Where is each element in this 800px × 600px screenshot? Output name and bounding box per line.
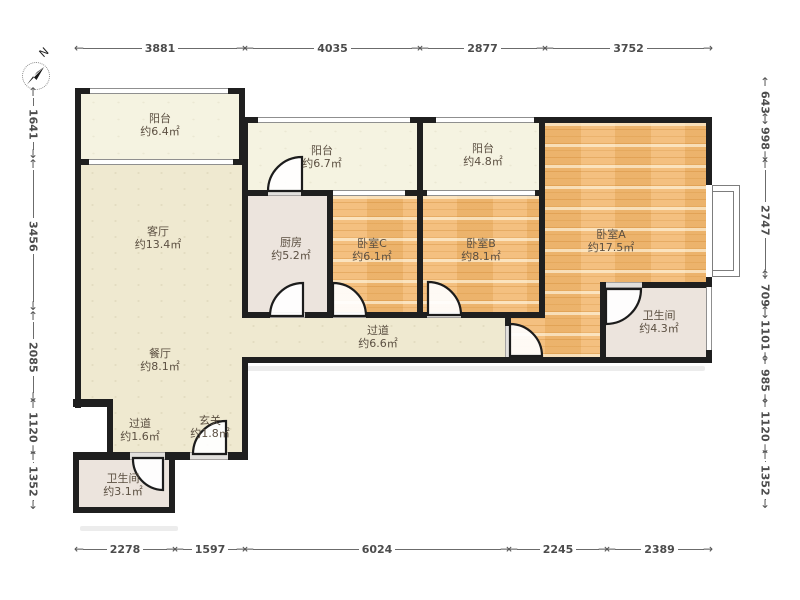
dim-line xyxy=(576,549,599,550)
dim-line xyxy=(517,549,540,550)
wall-shadow xyxy=(245,366,705,371)
exterior-notch xyxy=(73,407,107,452)
dim-label: 1352 xyxy=(759,462,772,499)
dim-line xyxy=(83,549,107,550)
wall-segment xyxy=(73,507,175,513)
dim-label: 4035 xyxy=(314,42,351,55)
dim-line xyxy=(83,48,142,49)
wall-segment xyxy=(600,282,606,363)
dim-line xyxy=(428,48,464,49)
window xyxy=(427,190,535,196)
dim-line xyxy=(33,98,34,106)
dim-label: 985 xyxy=(759,366,772,395)
dim-bottom-4: ←2245→ xyxy=(509,542,607,556)
room-label-bathroom-east: 卫生间 约4.3㎡ xyxy=(639,309,679,335)
dim-arrow-up-icon: ↑ xyxy=(760,307,770,317)
dim-line xyxy=(33,322,34,340)
dim-label: 2389 xyxy=(641,543,678,556)
dim-label: 2278 xyxy=(107,543,144,556)
room-label-bedroom-c: 卧室C 约6.1㎡ xyxy=(352,237,392,263)
window xyxy=(333,190,405,196)
room-name: 餐厅 xyxy=(140,347,180,360)
dim-line xyxy=(33,170,34,218)
room-area: 约8.1㎡ xyxy=(461,250,501,263)
dim-left-2: ↑3456↓ xyxy=(26,160,40,312)
dim-bottom-2: ←1597→ xyxy=(175,542,245,556)
dim-arrow-up-icon: ↑ xyxy=(28,160,38,170)
dim-bottom-3: ←6024→ xyxy=(245,542,509,556)
room-label-hallway: 过道 约6.6㎡ xyxy=(358,324,398,350)
wall-segment xyxy=(242,357,712,363)
compass-needle-icon xyxy=(23,63,49,89)
wall-segment xyxy=(461,312,545,318)
dim-line xyxy=(33,254,34,302)
wall-segment xyxy=(545,117,712,123)
dim-label: 2747 xyxy=(759,202,772,239)
room-name: 玄关 xyxy=(190,414,230,427)
dim-line xyxy=(183,549,192,550)
wall-segment xyxy=(242,117,258,123)
wall-segment xyxy=(242,363,248,458)
wall-segment xyxy=(228,452,248,460)
dim-left-1: ↑1641↓ xyxy=(26,88,40,160)
dim-line xyxy=(178,48,237,49)
dim-top-1: ←3881→ xyxy=(75,41,245,55)
bay-window-inner xyxy=(712,191,734,271)
dim-right-3: ↑2747↓ xyxy=(758,160,772,280)
room-label-bedroom-a: 卧室A 约17.5㎡ xyxy=(588,228,635,254)
dim-label: 1120 xyxy=(759,408,772,445)
room-label-dining: 餐厅 约8.1㎡ xyxy=(140,347,180,373)
door-sill xyxy=(427,312,461,318)
dim-label: 1641 xyxy=(27,106,40,143)
dim-bottom-5: ←2389→ xyxy=(607,542,712,556)
room-area: 约3.1㎡ xyxy=(103,485,143,498)
dim-arrow-up-icon: ↑ xyxy=(760,399,770,409)
dim-top-3: ←2877→ xyxy=(420,41,545,55)
dim-arrow-right-icon: → xyxy=(703,42,713,54)
dim-arrow-up-icon: ↑ xyxy=(28,400,38,410)
dim-label: 1101 xyxy=(759,317,772,354)
room-label-bathroom-south: 卫生间 约3.1㎡ xyxy=(103,472,143,498)
dim-line xyxy=(143,549,167,550)
wall-segment xyxy=(75,88,81,408)
dim-line xyxy=(253,549,359,550)
dim-label: 1352 xyxy=(27,463,40,500)
dim-line xyxy=(765,238,766,270)
dim-right-8: ↑1352↓ xyxy=(758,451,772,510)
room-area: 约6.7㎡ xyxy=(302,157,342,170)
room-name: 阳台 xyxy=(463,142,503,155)
dim-bottom-1: ←2278→ xyxy=(75,542,175,556)
dim-label: 1120 xyxy=(27,409,40,446)
room-label-bedroom-b: 卧室B 约8.1㎡ xyxy=(461,237,501,263)
room-name: 卧室A xyxy=(588,228,635,241)
dim-right-5: ↑1101↓ xyxy=(758,311,772,359)
room-area: 约6.6㎡ xyxy=(358,337,398,350)
wall-segment xyxy=(242,312,270,318)
room-label-living: 客厅 约13.4㎡ xyxy=(135,225,182,251)
room-name: 卫生间 xyxy=(103,472,143,485)
dim-line xyxy=(647,48,704,49)
window xyxy=(706,287,712,350)
window xyxy=(90,88,228,94)
room-label-corridor-small: 过道 约1.6㎡ xyxy=(120,417,160,443)
dim-arrow-right-icon: → xyxy=(703,543,713,555)
wall-segment xyxy=(423,117,436,123)
dim-line xyxy=(253,48,314,49)
dim-right-7: ↑1120↓ xyxy=(758,402,772,451)
dim-label: 3752 xyxy=(610,42,647,55)
wall-shadow xyxy=(80,526,178,531)
dim-line xyxy=(765,170,766,202)
wall-segment xyxy=(242,117,248,318)
window xyxy=(436,117,534,123)
dim-arrow-up-icon: ↑ xyxy=(760,78,770,88)
dim-line xyxy=(351,48,412,49)
room-label-foyer: 玄关 约1.8㎡ xyxy=(190,414,230,440)
dim-left-3: ↑2085↓ xyxy=(26,312,40,403)
room-area: 约13.4㎡ xyxy=(135,238,182,251)
room-name: 客厅 xyxy=(135,225,182,238)
dim-label: 2085 xyxy=(27,339,40,376)
dim-label: 1597 xyxy=(192,543,229,556)
dim-arrow-down-icon: ↓ xyxy=(28,501,38,511)
wall-segment xyxy=(706,123,712,185)
dim-line xyxy=(395,549,501,550)
dim-line xyxy=(678,549,704,550)
entry-door-sill xyxy=(190,452,228,460)
room-label-balcony-mid: 阳台 约6.7㎡ xyxy=(302,144,342,170)
room-label-kitchen: 厨房 约5.2㎡ xyxy=(271,236,311,262)
wall-segment xyxy=(366,312,427,318)
window xyxy=(258,117,410,123)
wall-segment xyxy=(642,282,712,288)
wall-segment xyxy=(73,452,130,460)
room-name: 厨房 xyxy=(271,236,311,249)
door-sill xyxy=(606,282,642,288)
room-name: 卧室B xyxy=(461,237,501,250)
wall-segment xyxy=(169,452,175,513)
room-name: 过道 xyxy=(120,417,160,430)
room-area: 约6.1㎡ xyxy=(352,250,392,263)
room-area: 约17.5㎡ xyxy=(588,241,635,254)
dim-label: 2245 xyxy=(540,543,577,556)
room-label-balcony-east: 阳台 约4.8㎡ xyxy=(463,142,503,168)
dim-right-2: ↑998↓ xyxy=(758,116,772,160)
dim-arrow-up-icon: ↑ xyxy=(28,312,38,322)
room-label-balcony-north: 阳台 约6.4㎡ xyxy=(140,112,180,138)
wall-segment xyxy=(505,318,511,326)
room-area: 约4.8㎡ xyxy=(463,155,503,168)
wall-segment xyxy=(405,190,427,196)
door-sill xyxy=(130,452,165,460)
wall-segment xyxy=(535,190,545,196)
door-sill xyxy=(332,312,366,318)
dim-line xyxy=(553,48,610,49)
dim-top-2: ←4035→ xyxy=(245,41,420,55)
dim-top-4: ←3752→ xyxy=(545,41,712,55)
wall-segment xyxy=(73,452,79,513)
dim-label: 998 xyxy=(759,124,772,153)
dim-line xyxy=(501,48,537,49)
wall-segment xyxy=(107,403,113,458)
door-sill xyxy=(505,326,511,357)
dim-arrow-up-icon: ↑ xyxy=(760,114,770,124)
dim-label: 2877 xyxy=(464,42,501,55)
wall-segment xyxy=(417,117,423,318)
door-sill xyxy=(270,312,305,318)
dim-left-5: ↑1352↓ xyxy=(26,452,40,511)
floor-plan: 阳台 约6.4㎡ 客厅 约13.4㎡ 餐厅 约8.1㎡ 过道 约1.6㎡ 玄关 … xyxy=(0,0,800,600)
dim-arrow-up-icon: ↑ xyxy=(760,160,770,170)
room-area: 约8.1㎡ xyxy=(140,360,180,373)
wall-segment xyxy=(539,117,545,318)
dim-label: 6024 xyxy=(359,543,396,556)
wall-segment xyxy=(75,159,89,165)
room-area: 约1.8㎡ xyxy=(190,427,230,440)
room-name: 卫生间 xyxy=(639,309,679,322)
dim-line xyxy=(615,549,641,550)
room-name: 阳台 xyxy=(140,112,180,125)
room-area: 约6.4㎡ xyxy=(140,125,180,138)
room-area: 约1.6㎡ xyxy=(120,430,160,443)
dim-arrow-up-icon: ↑ xyxy=(760,451,770,461)
room-area: 约4.3㎡ xyxy=(639,322,679,335)
compass-north-label: N xyxy=(37,45,52,60)
dim-arrow-up-icon: ↑ xyxy=(760,356,770,366)
door-sill xyxy=(268,190,301,196)
wall-segment xyxy=(242,190,268,196)
dim-label: 3456 xyxy=(27,218,40,255)
room-area: 约5.2㎡ xyxy=(271,249,311,262)
room-name: 阳台 xyxy=(302,144,342,157)
dim-label: 3881 xyxy=(142,42,179,55)
sliding-door-window xyxy=(89,159,233,165)
wall-segment xyxy=(327,190,333,318)
dim-arrow-down-icon: ↓ xyxy=(760,500,770,510)
compass xyxy=(22,62,50,90)
dim-arrow-up-icon: ↑ xyxy=(760,271,770,281)
room-name: 过道 xyxy=(358,324,398,337)
dim-left-4: ↑1120↓ xyxy=(26,403,40,452)
dim-arrow-up-icon: ↑ xyxy=(28,452,38,462)
room-name: 卧室C xyxy=(352,237,392,250)
